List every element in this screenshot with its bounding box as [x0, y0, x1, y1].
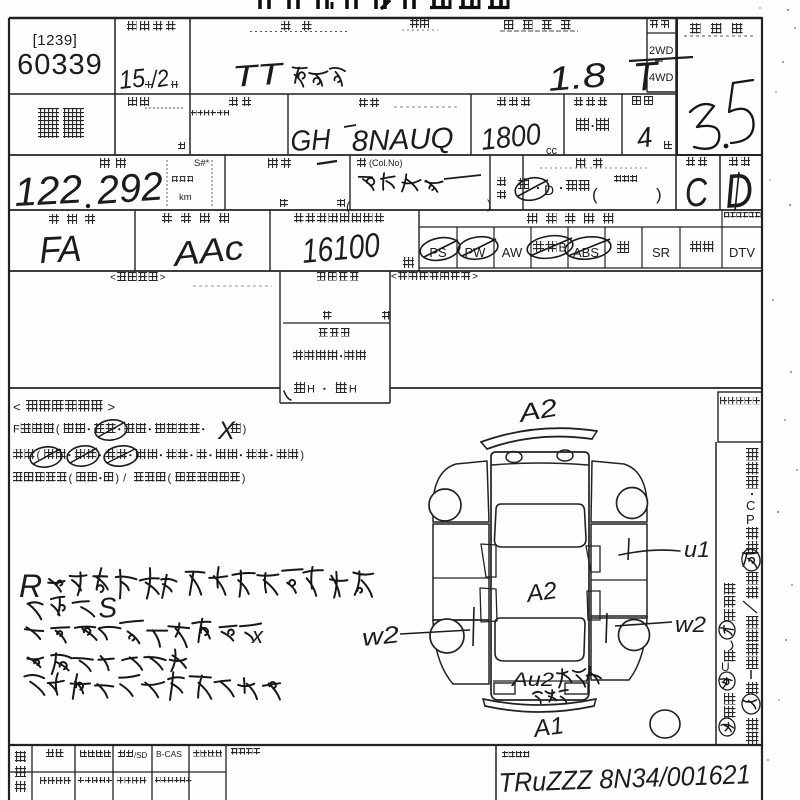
svg-text:1.8: 1.8: [546, 56, 607, 99]
svg-text:Au2: Au2: [511, 670, 555, 691]
svg-text:/SD: /SD: [134, 751, 148, 760]
svg-text:(: (: [56, 424, 60, 436]
svg-text:DTV: DTV: [729, 245, 755, 260]
svg-text:>: >: [160, 273, 166, 284]
svg-text:8NAUQ: 8NAUQ: [351, 122, 454, 158]
svg-text:(: (: [69, 473, 73, 485]
svg-text:): ): [243, 424, 247, 436]
svg-text:B-CAS: B-CAS: [156, 749, 182, 759]
svg-text:4WD: 4WD: [649, 72, 674, 84]
svg-text:P: P: [746, 512, 755, 527]
svg-text:w2: w2: [361, 621, 401, 652]
svg-text:<: <: [391, 272, 397, 283]
svg-text:(: (: [346, 199, 351, 214]
svg-text:122: 122: [13, 167, 83, 214]
svg-text:>: >: [108, 399, 116, 414]
svg-text:16100: 16100: [300, 226, 381, 271]
svg-text:GH: GH: [290, 124, 332, 158]
svg-text:60339: 60339: [17, 49, 103, 81]
svg-text:S: S: [97, 591, 119, 624]
svg-text:AW: AW: [502, 245, 523, 260]
svg-text:): ): [115, 473, 119, 485]
svg-text:C: C: [746, 498, 755, 513]
svg-text:w2: w2: [675, 612, 706, 637]
svg-text:X: X: [217, 417, 236, 445]
svg-text:R: R: [19, 568, 42, 604]
svg-text:km: km: [179, 192, 192, 203]
svg-text:(: (: [592, 185, 598, 204]
svg-text:<: <: [13, 399, 21, 414]
svg-text:A1: A1: [530, 712, 565, 743]
svg-text:H: H: [307, 383, 315, 395]
svg-text:cc: cc: [546, 145, 558, 157]
svg-text:x: x: [251, 623, 264, 648]
svg-text:292: 292: [95, 164, 165, 213]
svg-text:S#*: S#*: [194, 158, 210, 169]
svg-text:(: (: [167, 473, 171, 485]
svg-text:TT: TT: [231, 57, 287, 94]
svg-text:): ): [487, 197, 491, 212]
svg-text:AAc: AAc: [170, 229, 246, 274]
svg-text:15: 15: [117, 62, 146, 95]
svg-text:(Col.No): (Col.No): [369, 158, 403, 168]
svg-text:): ): [242, 473, 246, 485]
svg-text:FA: FA: [38, 228, 82, 271]
svg-text:H: H: [349, 383, 357, 395]
svg-text:>: >: [472, 272, 478, 283]
svg-text:C: C: [683, 170, 711, 216]
svg-text:A2: A2: [523, 577, 558, 608]
svg-text:): ): [300, 450, 304, 462]
svg-text:u1: u1: [684, 537, 710, 562]
svg-text:F: F: [13, 424, 20, 436]
svg-text:): ): [656, 185, 662, 204]
svg-text:[1239]: [1239]: [33, 32, 78, 49]
svg-text:1800: 1800: [479, 118, 542, 157]
svg-text:SR: SR: [652, 245, 670, 260]
svg-text:<: <: [110, 273, 116, 284]
svg-text:2WD: 2WD: [649, 45, 674, 57]
